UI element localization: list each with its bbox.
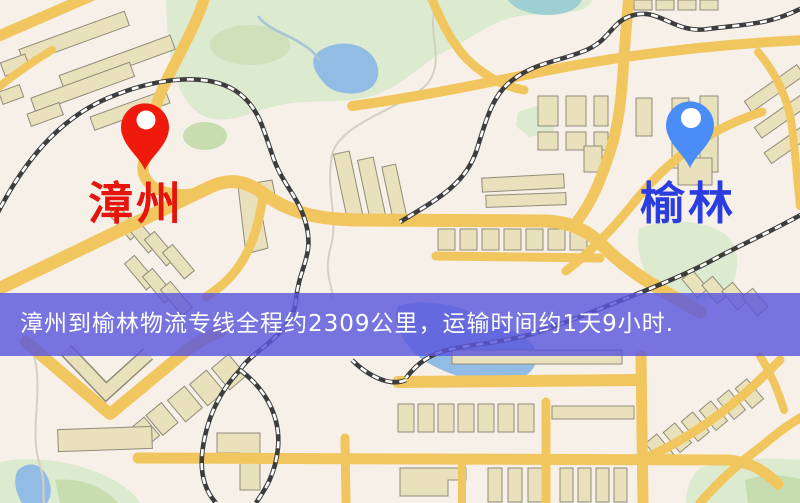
origin-city-label: 漳州 — [88, 179, 184, 229]
destination-city-label: 榆林 — [640, 179, 736, 229]
pin-hole — [137, 111, 156, 130]
map-svg: 漳州 榆林 — [0, 0, 800, 503]
route-info-banner: 漳州到榆林物流专线全程约2309公里，运输时间约1天9小时. — [0, 293, 800, 356]
route-info-text: 漳州到榆林物流专线全程约2309公里，运输时间约1天9小时. — [0, 293, 800, 356]
map-image: 漳州 榆林 漳州到榆林物流专线全程约2309公里，运输时间约1天9小时. — [0, 0, 800, 503]
pin-hole — [681, 108, 701, 128]
